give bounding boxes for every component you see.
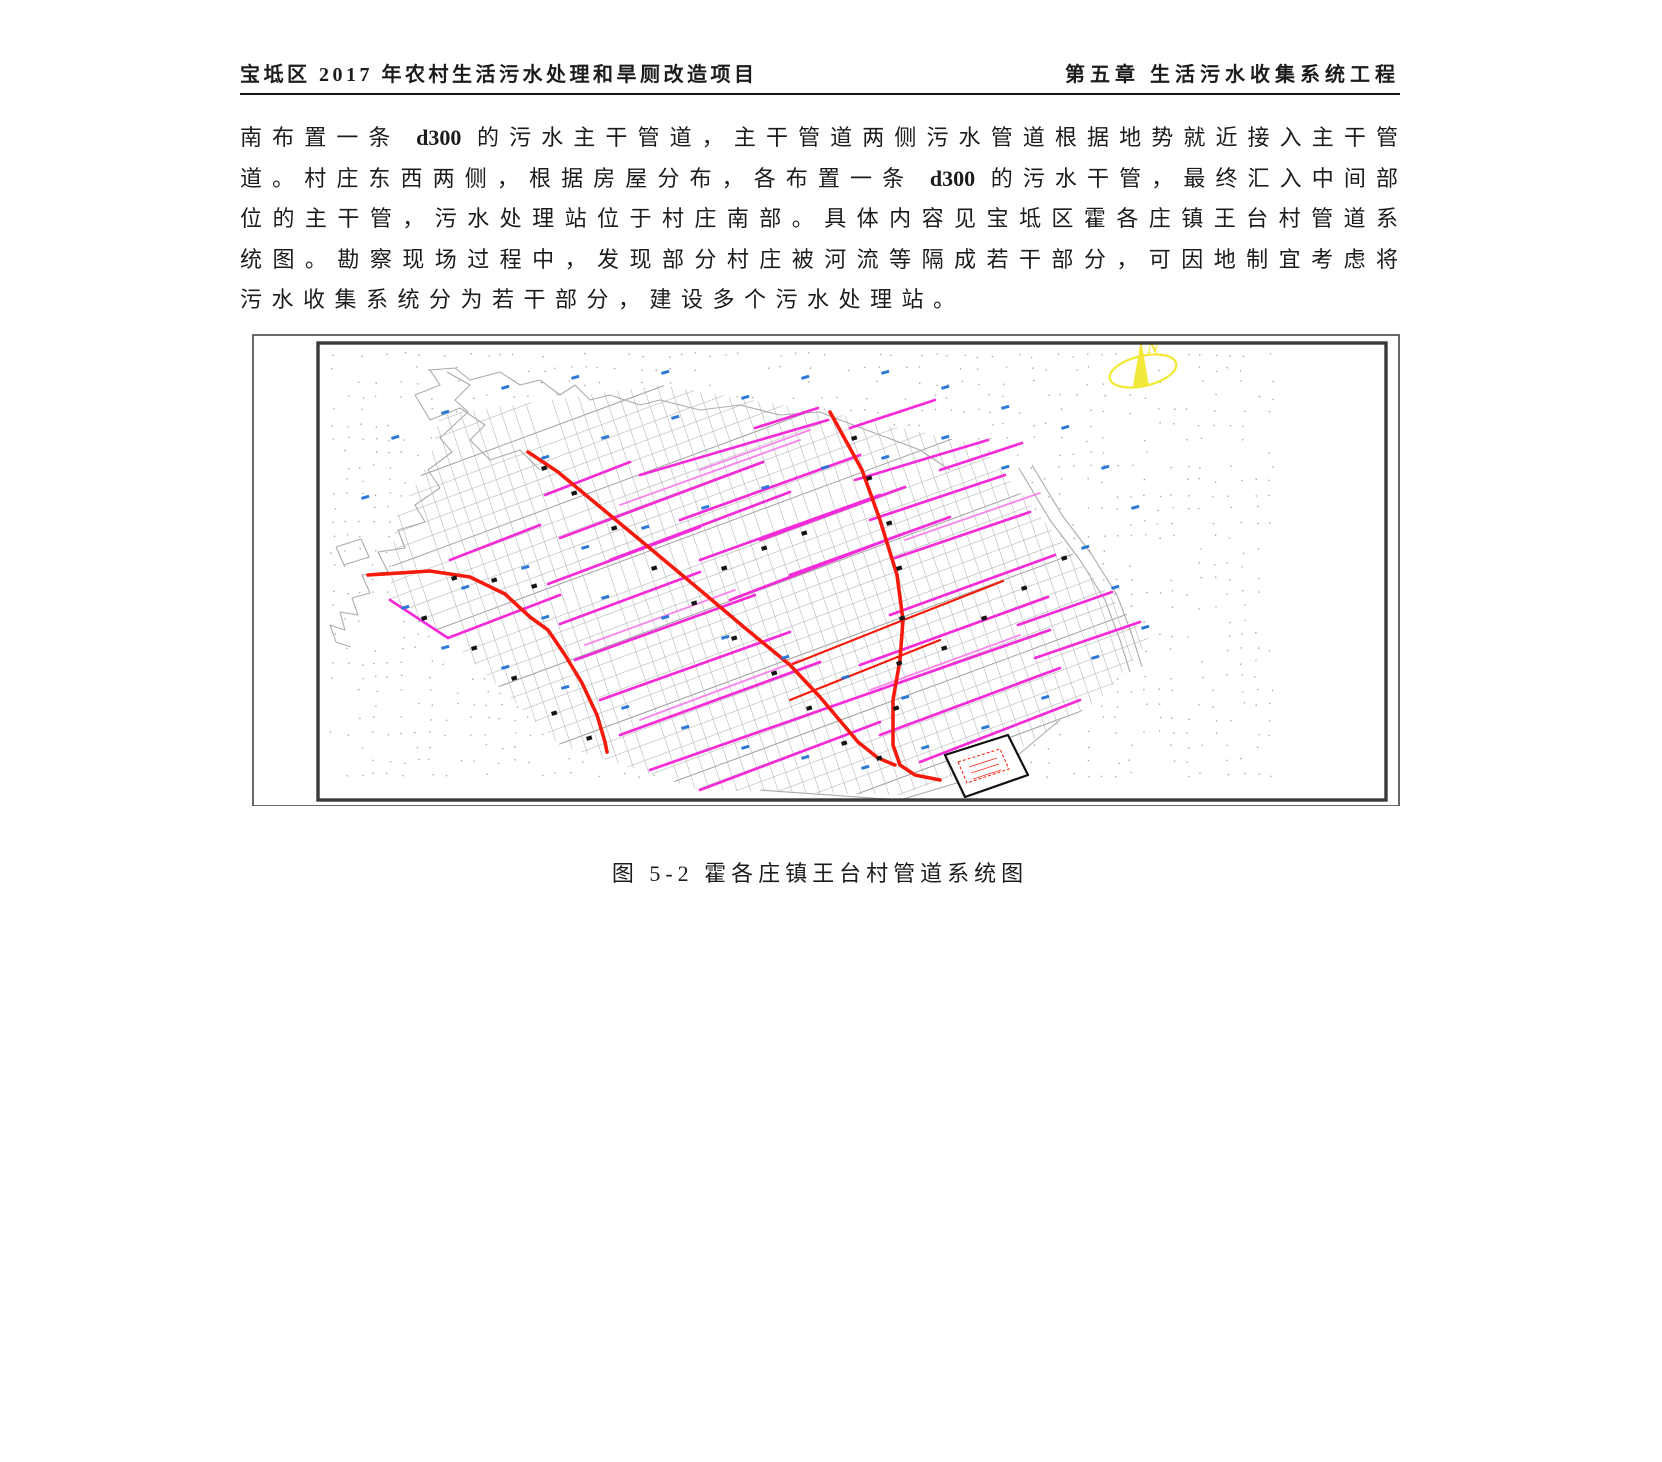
branch-pipes [390, 400, 1140, 790]
document-page: 宝坻区 2017 年农村生活污水处理和旱厕改造项目 第五章 生活污水收集系统工程… [0, 0, 1662, 1462]
body-line: 污水收集系统分为若干部分，建设多个污水处理站。 [240, 280, 1398, 321]
treatment-plant [945, 735, 1028, 797]
pipeline-map-svg: N [241, 317, 1401, 806]
body-paragraph: 南布置一条 d300 的污水主干管道，主干管道两侧污水管道根据地势就近接入主干管… [240, 118, 1398, 321]
body-line: 南布置一条 d300 的污水主干管道，主干管道两侧污水管道根据地势就近接入主干管 [240, 118, 1398, 159]
north-compass: N [1106, 339, 1179, 393]
body-line: 统图。勘察现场过程中，发现部分村庄被河流等隔成若干部分，可因地制宜考虑将 [240, 240, 1398, 281]
body-line: 道。村庄东西两侧，根据房屋分布，各布置一条 d300 的污水干管，最终汇入中间部 [240, 159, 1398, 200]
header-left-title: 宝坻区 2017 年农村生活污水处理和旱厕改造项目 [240, 58, 758, 87]
page-header: 宝坻区 2017 年农村生活污水处理和旱厕改造项目 第五章 生活污水收集系统工程 [240, 58, 1400, 95]
body-line: 位的主干管，污水处理站位于村庄南部。具体内容见宝坻区霍各庄镇王台村管道系 [240, 199, 1398, 240]
header-right-chapter: 第五章 生活污水收集系统工程 [1065, 58, 1400, 87]
figure-caption: 图 5-2 霍各庄镇王台村管道系统图 [240, 856, 1400, 888]
pipeline-map-figure: N [241, 317, 1401, 806]
